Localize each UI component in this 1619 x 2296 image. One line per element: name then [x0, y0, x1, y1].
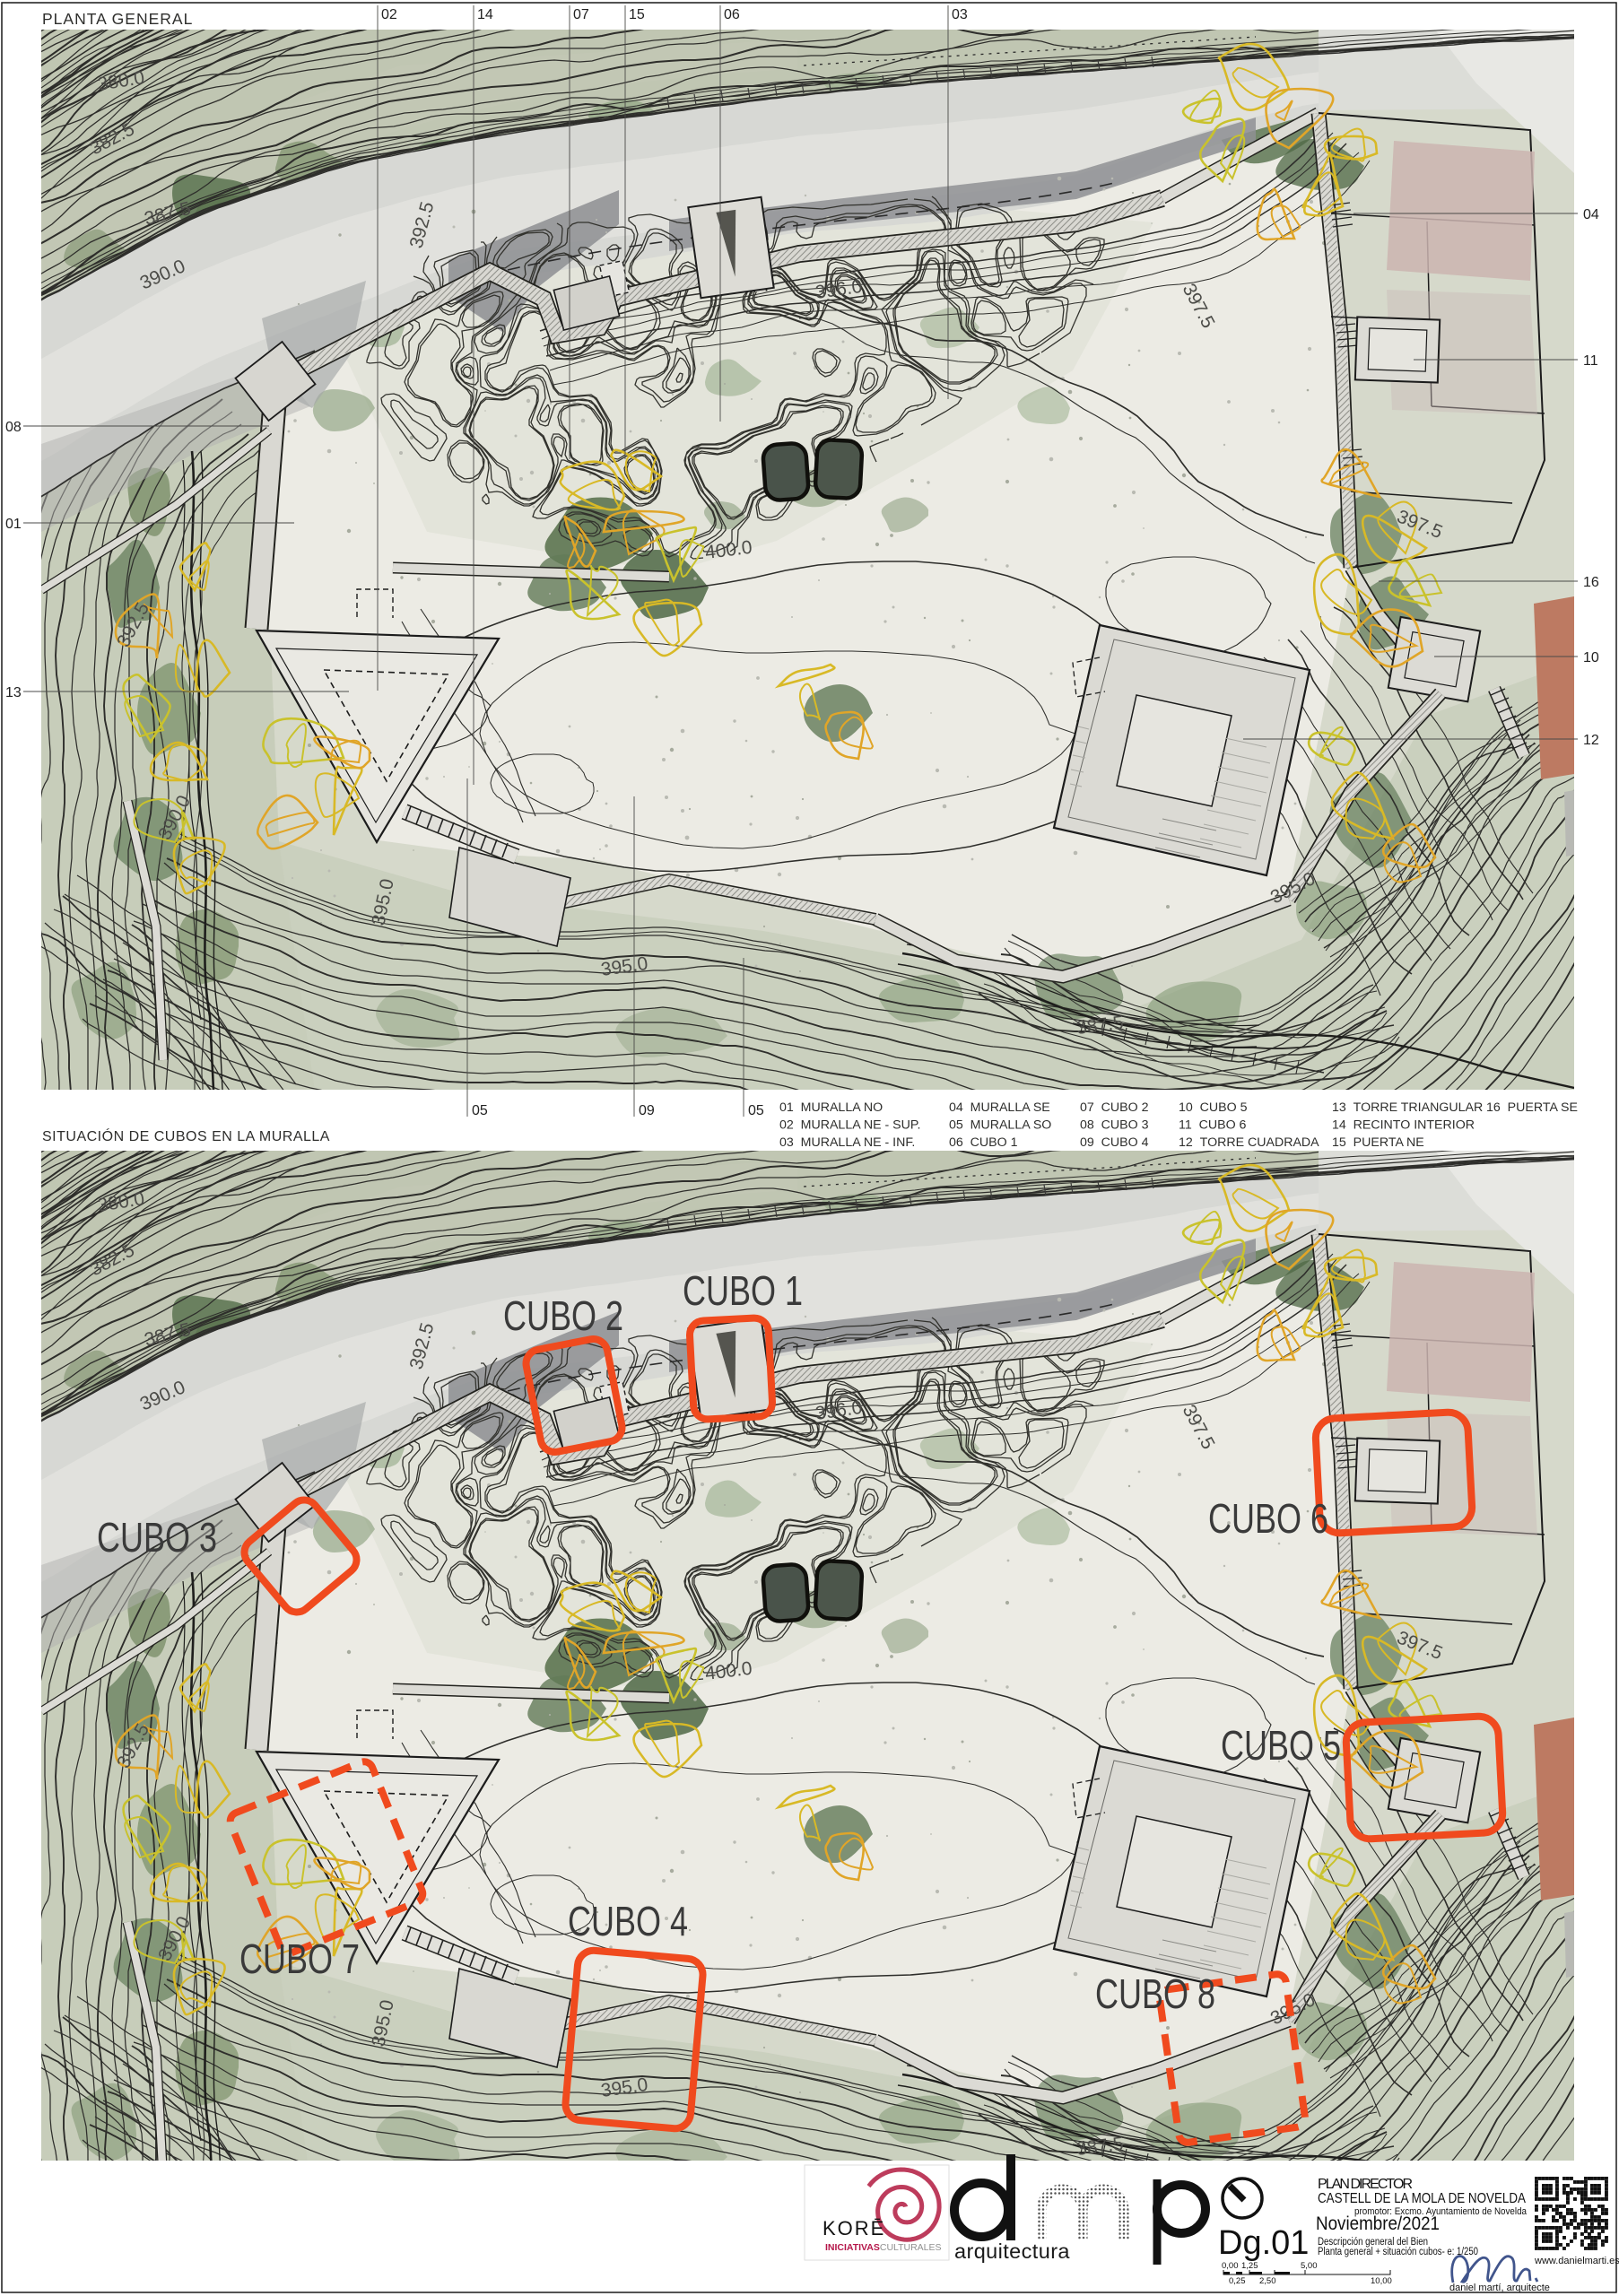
- svg-text:10 CUBO 5: 10 CUBO 5: [1179, 1100, 1248, 1115]
- svg-text:11: 11: [1583, 353, 1598, 369]
- svg-text:INICIATIVASCULTURALES: INICIATIVASCULTURALES: [825, 2242, 942, 2253]
- svg-text:CUBO 3: CUBO 3: [97, 1514, 217, 1561]
- svg-text:01 MURALLA NO: 01 MURALLA NO: [779, 1100, 883, 1115]
- svg-text:SITUACIÓN DE CUBOS EN LA MURAL: SITUACIÓN DE CUBOS EN LA MURALLA: [42, 1127, 330, 1144]
- svg-text:04 MURALLA SE: 04 MURALLA SE: [949, 1100, 1050, 1115]
- svg-text:04: 04: [1583, 207, 1599, 222]
- svg-text:09: 09: [639, 1103, 655, 1118]
- svg-text:CUBO 8: CUBO 8: [1095, 1970, 1215, 2017]
- svg-text:07 CUBO 2: 07 CUBO 2: [1080, 1100, 1149, 1115]
- svg-text:2,50: 2,50: [1259, 2276, 1276, 2286]
- svg-text:KORĒ: KORĒ: [823, 2217, 885, 2239]
- svg-text:12 TORRE CUADRADA: 12 TORRE CUADRADA: [1179, 1135, 1319, 1150]
- svg-text:08 CUBO 3: 08 CUBO 3: [1080, 1118, 1149, 1133]
- svg-text:03 MURALLA NE - INF.: 03 MURALLA NE - INF.: [779, 1135, 915, 1150]
- svg-text:13 TORRE TRIANGULAR: 13 TORRE TRIANGULAR: [1332, 1100, 1483, 1115]
- svg-text:PLANTA GENERAL: PLANTA GENERAL: [42, 10, 193, 28]
- svg-text:Dg.01: Dg.01: [1218, 2224, 1309, 2262]
- svg-text:05 MURALLA SO: 05 MURALLA SO: [949, 1118, 1051, 1133]
- svg-text:CUBO 4: CUBO 4: [568, 1898, 688, 1944]
- svg-text:1,25: 1,25: [1241, 2261, 1258, 2271]
- svg-text:05: 05: [472, 1103, 488, 1118]
- svg-text:CUBO 6: CUBO 6: [1208, 1495, 1328, 1542]
- svg-text:03: 03: [952, 7, 968, 22]
- svg-text:02: 02: [381, 7, 397, 22]
- svg-text:16 PUERTA SE: 16 PUERTA SE: [1486, 1100, 1578, 1115]
- svg-text:15: 15: [629, 7, 645, 22]
- svg-text:11 CUBO 6: 11 CUBO 6: [1179, 1118, 1247, 1133]
- svg-text:0,00: 0,00: [1222, 2261, 1239, 2271]
- svg-text:06 CUBO 1: 06 CUBO 1: [949, 1135, 1018, 1150]
- svg-text:arquitectura: arquitectura: [954, 2239, 1070, 2263]
- svg-text:10: 10: [1583, 650, 1599, 665]
- svg-text:07: 07: [573, 7, 589, 22]
- svg-text:CASTELL DE LA MOLA DE NOVELDA: CASTELL DE LA MOLA DE NOVELDA: [1318, 2191, 1526, 2206]
- svg-text:13: 13: [5, 685, 22, 700]
- svg-text:15 PUERTA NE: 15 PUERTA NE: [1332, 1135, 1424, 1150]
- svg-text:09 CUBO 4: 09 CUBO 4: [1080, 1135, 1149, 1150]
- svg-text:Noviembre/2021: Noviembre/2021: [1316, 2213, 1440, 2234]
- svg-text:CUBO 1: CUBO 1: [683, 1267, 803, 1314]
- svg-text:02 MURALLA NE - SUP.: 02 MURALLA NE - SUP.: [779, 1118, 920, 1133]
- svg-text:10,00: 10,00: [1371, 2276, 1392, 2286]
- svg-text:CUBO 7: CUBO 7: [239, 1935, 360, 1982]
- svg-text:5,00: 5,00: [1301, 2261, 1318, 2271]
- svg-text:daniel martí, arquitecte: daniel martí, arquitecte: [1449, 2283, 1550, 2293]
- svg-text:14 RECINTO INTERIOR: 14 RECINTO INTERIOR: [1332, 1118, 1475, 1133]
- svg-text:CUBO 2: CUBO 2: [503, 1292, 623, 1339]
- svg-text:14: 14: [477, 7, 493, 22]
- svg-text:06: 06: [724, 7, 740, 22]
- svg-text:Planta general + situación cub: Planta general + situación cubos- e: 1/2…: [1318, 2247, 1478, 2257]
- svg-text:01: 01: [5, 517, 22, 532]
- svg-text:08: 08: [5, 420, 22, 435]
- svg-text:16: 16: [1583, 575, 1599, 590]
- svg-text:0,25: 0,25: [1229, 2276, 1246, 2286]
- svg-text:www.danielmarti.es: www.danielmarti.es: [1534, 2256, 1619, 2266]
- svg-text:PLAN DIRECTOR: PLAN DIRECTOR: [1318, 2177, 1413, 2192]
- svg-text:05: 05: [748, 1103, 764, 1118]
- svg-text:CUBO 5: CUBO 5: [1221, 1722, 1341, 1769]
- svg-text:12: 12: [1583, 733, 1599, 748]
